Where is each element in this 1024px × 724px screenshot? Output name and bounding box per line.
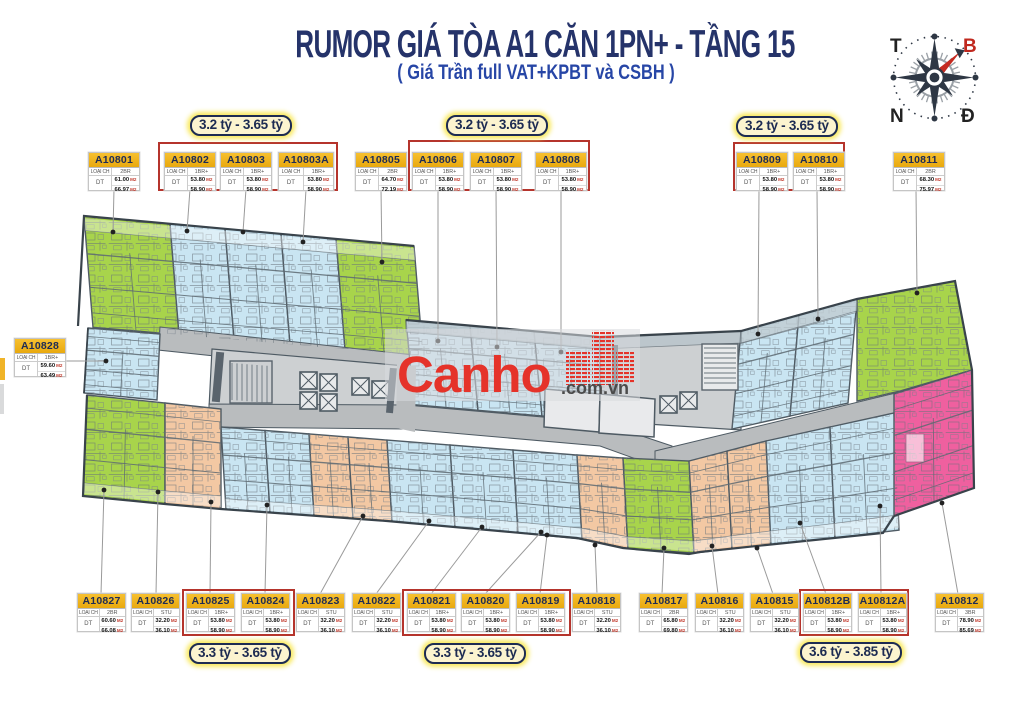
- svg-text:Canho: Canho: [397, 346, 551, 403]
- svg-text:B: B: [963, 36, 977, 57]
- svg-text:Đ: Đ: [961, 106, 975, 127]
- svg-text:N: N: [890, 106, 904, 127]
- svg-text:.com.vn: .com.vn: [561, 378, 629, 398]
- svg-text:T: T: [890, 36, 902, 57]
